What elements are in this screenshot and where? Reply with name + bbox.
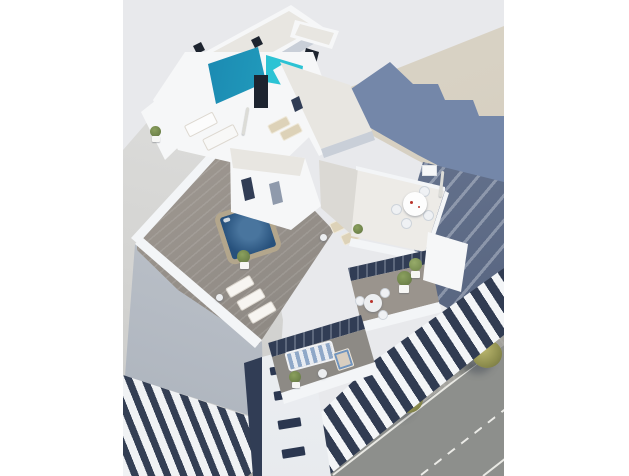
dining-chair-3 [423,210,434,221]
bistro-chair-3 [378,310,388,320]
bistro-red-item [370,300,373,303]
balcony-low-table [318,369,327,378]
terrace-plant [353,224,363,234]
rooftop-planter [152,136,160,142]
table-setting-red-1 [410,201,413,204]
balcony-bush-2 [409,258,422,271]
table-setting-red-2 [418,206,420,208]
terrace-cabinet [422,165,437,176]
photo-area [123,0,504,476]
dining-table [403,192,427,216]
deck-planter [240,262,249,269]
bistro-chair-2 [380,288,390,298]
mid-side-table [320,234,327,241]
balcony-low-planter [292,382,300,388]
balcony-planter-1 [399,285,409,293]
dining-chair-4 [401,218,412,229]
dining-chair-1 [391,204,402,215]
balcony-bush-1 [397,271,412,286]
bistro-table [364,294,382,312]
deck-side-table [216,294,223,301]
render-canvas [0,0,629,476]
balcony-planter-2 [411,271,420,278]
